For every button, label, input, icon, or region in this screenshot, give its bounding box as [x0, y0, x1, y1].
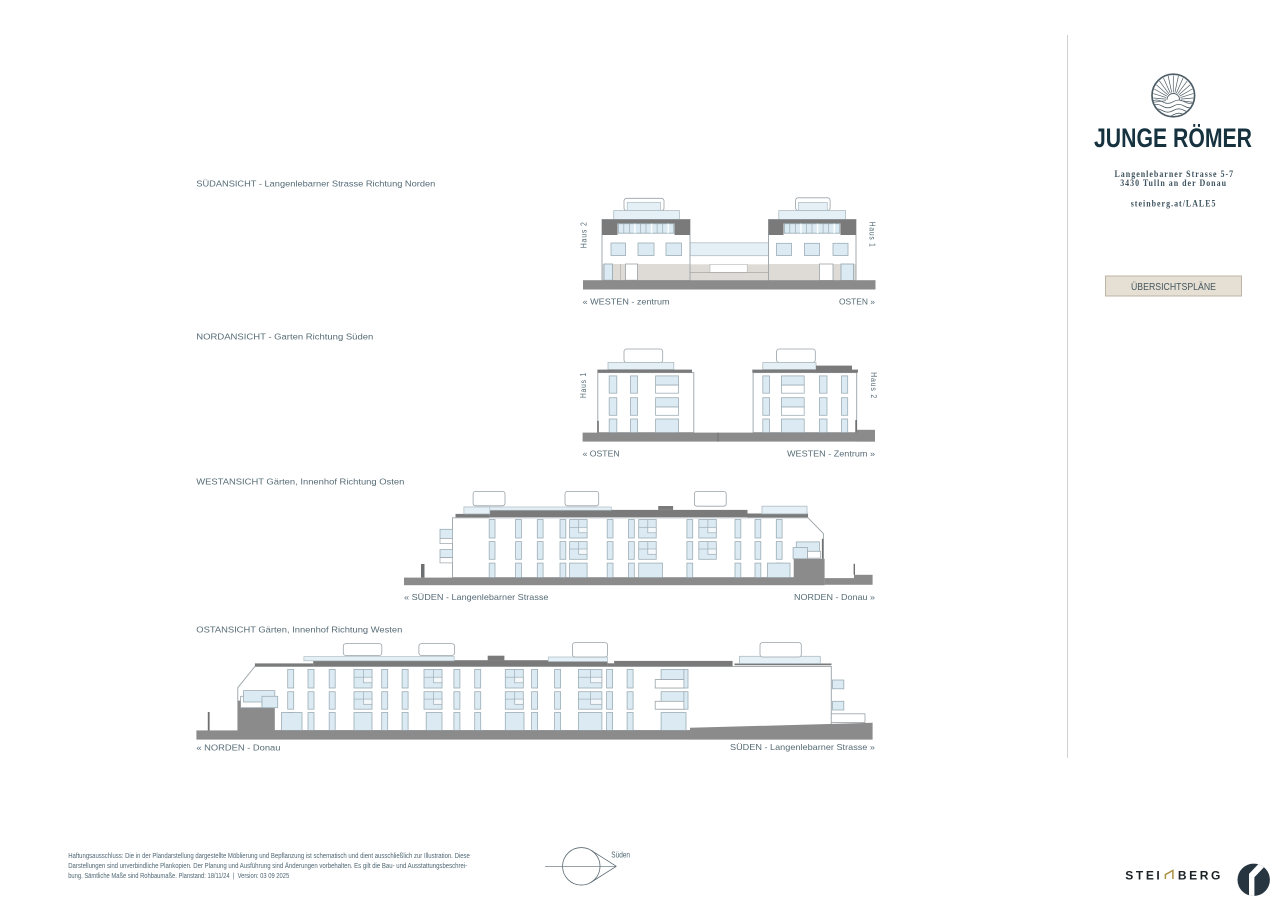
svg-text:WESTANSICHT Gärten, Innenhof R: WESTANSICHT Gärten, Innenhof Richtung Os…: [196, 478, 405, 487]
svg-text:OSTEN »: OSTEN »: [839, 296, 875, 306]
svg-text:OSTANSICHT Gärten, Innenhof Ri: OSTANSICHT Gärten, Innenhof Richtung Wes…: [196, 626, 402, 635]
svg-text:Haus 2: Haus 2: [869, 372, 879, 399]
svg-text:Süden: Süden: [611, 851, 630, 860]
svg-text:« SÜDEN - Langenlebarner Stras: « SÜDEN - Langenlebarner Strasse: [404, 592, 549, 602]
svg-text:steinberg.at/LALE5: steinberg.at/LALE5: [1131, 199, 1217, 209]
svg-text:Haus 1: Haus 1: [868, 222, 878, 248]
svg-text:« WESTEN - zentrum: « WESTEN - zentrum: [583, 296, 670, 306]
svg-text:SÜDANSICHT - Langenlebarner St: SÜDANSICHT - Langenlebarner Strasse Rich…: [196, 178, 435, 188]
svg-text:JUNGE RÖMER: JUNGE RÖMER: [1094, 123, 1252, 153]
svg-text:« NORDEN - Donau: « NORDEN - Donau: [196, 743, 280, 753]
svg-text:NORDANSICHT - Garten Richtung: NORDANSICHT - Garten Richtung Süden: [196, 332, 374, 341]
svg-text:NORDEN - Donau »: NORDEN - Donau »: [794, 592, 875, 602]
svg-text:ÜBERSICHTSPLÄNE: ÜBERSICHTSPLÄNE: [1131, 281, 1216, 293]
svg-text:BERG: BERG: [1178, 869, 1223, 883]
svg-text:3430 Tulln an der Donau: 3430 Tulln an der Donau: [1120, 178, 1227, 189]
svg-text:« OSTEN: « OSTEN: [583, 449, 620, 459]
svg-text:bung. Sämtliche Maße sind Rohb: bung. Sämtliche Maße sind Rohbaumaße. Pl…: [68, 873, 289, 880]
svg-text:Darstellungen sind unverbindli: Darstellungen sind unverbindliche Planko…: [68, 862, 468, 870]
svg-text:STEI: STEI: [1125, 869, 1162, 883]
svg-text:Haus 2: Haus 2: [579, 221, 589, 248]
svg-text:WESTEN - Zentrum »: WESTEN - Zentrum »: [787, 449, 875, 459]
svg-text:Haus 1: Haus 1: [578, 372, 588, 398]
svg-text:Haftungsausschluss: Die in der: Haftungsausschluss: Die in der Plandarst…: [68, 853, 470, 860]
svg-text:SÜDEN - Langenlebarner Strasse: SÜDEN - Langenlebarner Strasse »: [730, 742, 875, 752]
